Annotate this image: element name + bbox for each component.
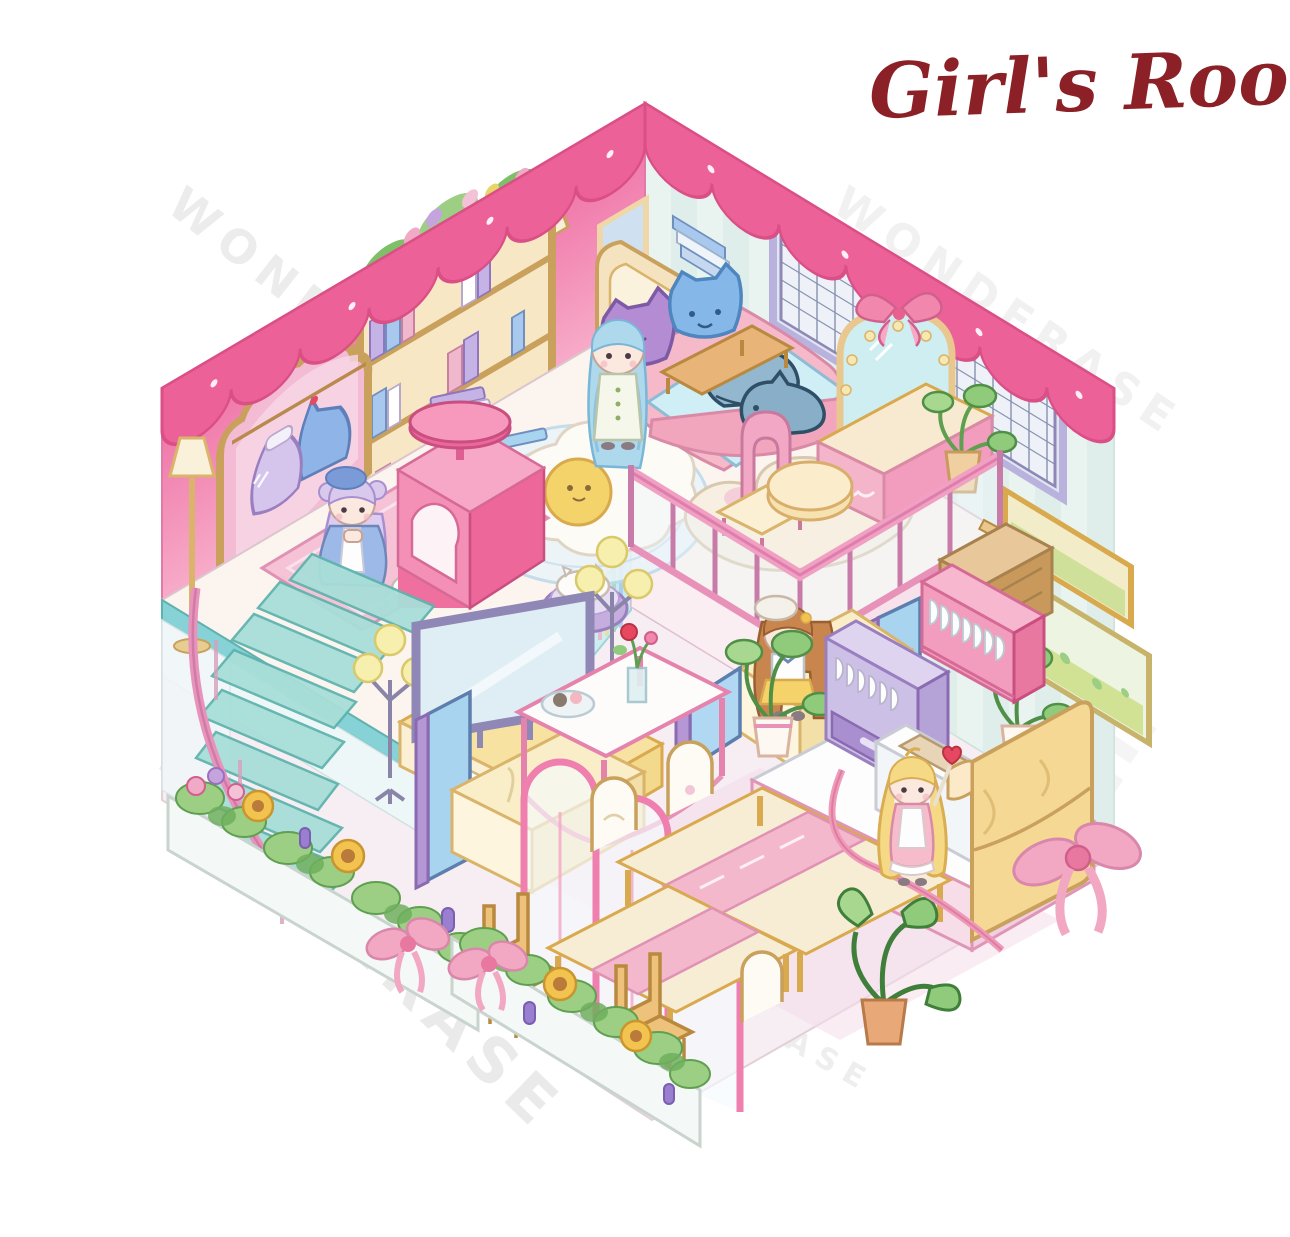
sunflower <box>243 791 273 821</box>
girls-room-illustration: WONDERASE WONDERASE WONDERASE WONDERASE … <box>0 0 1290 1237</box>
girl-blue-hair <box>588 320 646 468</box>
sunflower <box>332 840 364 872</box>
page-title: Girl's Room <box>868 30 1290 136</box>
round-pouf <box>768 462 852 520</box>
sunflower <box>544 968 576 1000</box>
sunflower <box>621 1021 651 1051</box>
dessert-plate <box>542 691 594 717</box>
illustration-svg: WONDERASE WONDERASE WONDERASE WONDERASE … <box>0 0 1290 1237</box>
